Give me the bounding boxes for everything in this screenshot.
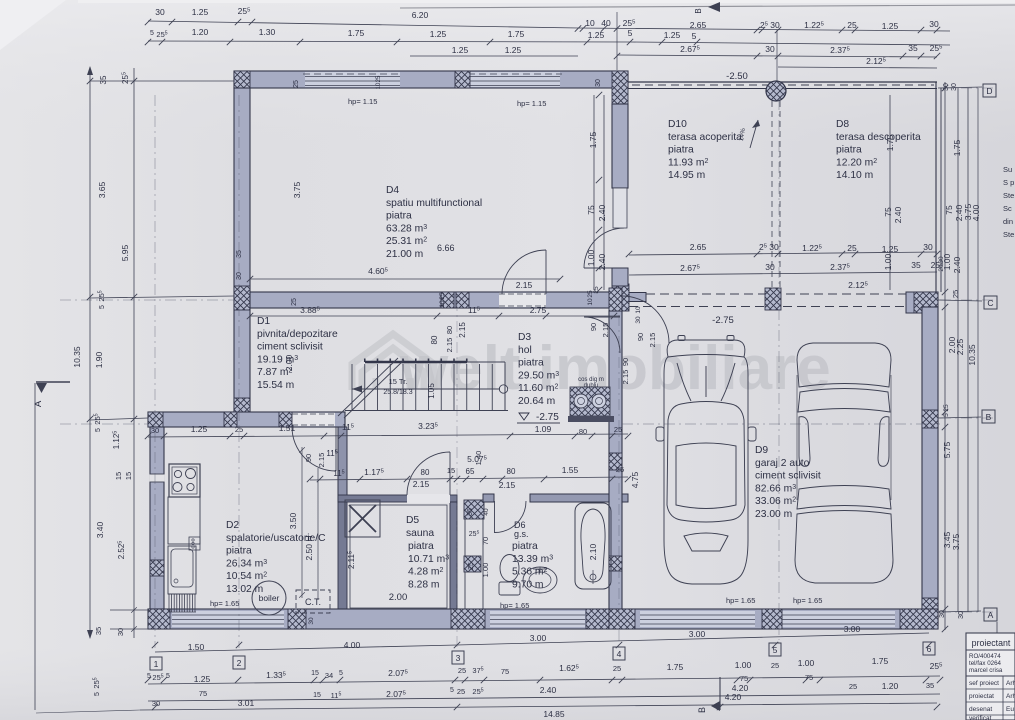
svg-text:1.75: 1.75: [885, 134, 895, 151]
svg-text:25: 25: [847, 20, 857, 30]
svg-text:D2: D2: [226, 520, 239, 531]
svg-text:30: 30: [308, 617, 315, 625]
svg-text:3.75: 3.75: [951, 533, 961, 550]
svg-text:hp= 1.65: hp= 1.65: [500, 601, 529, 610]
svg-text:terasa descoperita: terasa descoperita: [836, 132, 921, 143]
svg-text:3.65: 3.65: [97, 181, 107, 198]
svg-text:1.25: 1.25: [505, 45, 522, 55]
svg-text:D5: D5: [406, 515, 419, 526]
svg-text:terasa acoperita: terasa acoperita: [668, 132, 742, 143]
svg-text:hp= 1.65: hp= 1.65: [793, 596, 822, 605]
svg-text:5.95: 5.95: [120, 244, 130, 261]
svg-text:5: 5: [773, 645, 778, 655]
svg-text:15 Tr.: 15 Tr.: [389, 377, 408, 386]
svg-text:2.15: 2.15: [648, 333, 657, 348]
svg-text:25: 25: [439, 292, 446, 300]
svg-text:5: 5: [95, 428, 102, 432]
svg-text:80: 80: [430, 335, 439, 344]
svg-text:4.75: 4.75: [630, 471, 640, 488]
svg-text:-2.50: -2.50: [726, 71, 748, 82]
svg-text:34: 34: [325, 671, 333, 680]
svg-text:1.20: 1.20: [192, 27, 209, 37]
svg-text:25.8/18.3: 25.8/18.3: [383, 389, 412, 396]
svg-text:4: 4: [617, 649, 622, 659]
svg-text:5.75: 5.75: [942, 441, 952, 458]
svg-text:spatiu multifunctional: spatiu multifunctional: [386, 198, 482, 209]
svg-text:-2.75: -2.75: [536, 412, 559, 423]
svg-text:Arh: Arh: [1006, 680, 1015, 687]
svg-text:6.20: 6.20: [412, 10, 429, 20]
svg-text:30: 30: [595, 79, 602, 87]
svg-text:75: 75: [944, 205, 954, 215]
svg-text:1.25: 1.25: [664, 30, 681, 40]
svg-text:1.75: 1.75: [952, 139, 962, 156]
svg-text:30: 30: [765, 262, 775, 272]
svg-text:3.40: 3.40: [95, 521, 105, 538]
svg-text:1.25: 1.25: [882, 244, 899, 254]
svg-text:C.T.: C.T.: [305, 597, 321, 607]
svg-text:1.05: 1.05: [427, 383, 436, 399]
svg-text:D8: D8: [836, 119, 849, 130]
svg-text:80: 80: [579, 427, 587, 436]
svg-text:2.75: 2.75: [530, 305, 547, 315]
svg-text:1.00: 1.00: [735, 660, 752, 670]
svg-text:2.40: 2.40: [952, 256, 962, 273]
svg-text:1: 1: [154, 659, 159, 669]
svg-text:piatra: piatra: [226, 546, 252, 557]
svg-text:75: 75: [883, 207, 893, 217]
svg-text:25: 25: [614, 425, 622, 434]
svg-text:15: 15: [114, 472, 123, 480]
svg-text:10: 10: [635, 306, 642, 314]
svg-text:25: 25: [468, 562, 475, 570]
svg-text:2.15: 2.15: [317, 453, 326, 468]
svg-text:5: 5: [166, 673, 170, 680]
svg-text:3: 3: [456, 653, 461, 663]
svg-text:piatra: piatra: [668, 145, 694, 156]
svg-text:25.31 m2: 25.31 m2: [386, 236, 427, 247]
svg-text:D: D: [986, 86, 992, 96]
svg-text:5: 5: [150, 30, 154, 37]
svg-text:S p: S p: [1003, 178, 1014, 187]
svg-text:1.75: 1.75: [348, 28, 365, 38]
svg-text:20.64 m: 20.64 m: [518, 396, 555, 407]
svg-text:g.s.: g.s.: [514, 529, 529, 539]
svg-text:30: 30: [769, 242, 779, 252]
svg-text:hp= 1.15: hp= 1.15: [517, 99, 546, 108]
svg-text:23.00 m: 23.00 m: [755, 509, 792, 520]
svg-text:3.50: 3.50: [288, 512, 298, 529]
svg-text:3.00: 3.00: [689, 629, 706, 639]
svg-text:1.09: 1.09: [535, 424, 552, 434]
svg-text:A: A: [988, 610, 994, 620]
svg-text:proiectant: proiectant: [972, 638, 1011, 648]
svg-text:proiectat: proiectat: [969, 693, 994, 700]
svg-text:hp= 1.15: hp= 1.15: [348, 97, 377, 106]
svg-text:75: 75: [199, 689, 207, 698]
svg-text:3.01: 3.01: [238, 698, 255, 708]
svg-text:dublu: dublu: [584, 383, 599, 389]
svg-text:10.71 m3: 10.71 m3: [408, 554, 449, 565]
svg-text:35: 35: [926, 681, 934, 690]
svg-text:30: 30: [770, 20, 780, 30]
svg-text:29.50 m3: 29.50 m3: [518, 370, 559, 381]
svg-text:D1: D1: [257, 316, 270, 327]
svg-text:3.75: 3.75: [292, 181, 302, 198]
svg-text:B: B: [694, 8, 703, 13]
svg-text:1.40: 1.40: [474, 451, 483, 466]
svg-text:25: 25: [771, 661, 779, 670]
svg-text:25: 25: [235, 425, 243, 434]
svg-text:1.00: 1.00: [883, 253, 893, 270]
svg-text:garaj 2 auto: garaj 2 auto: [755, 458, 810, 469]
svg-text:26.34 m3: 26.34 m3: [226, 558, 267, 569]
svg-text:25: 25: [849, 682, 857, 691]
svg-text:1.00: 1.00: [481, 563, 490, 578]
svg-text:5: 5: [99, 305, 106, 309]
svg-text:90: 90: [636, 333, 645, 341]
svg-text:5: 5: [692, 31, 697, 41]
svg-text:75: 75: [586, 205, 596, 215]
svg-text:25: 25: [457, 687, 465, 696]
svg-text:RO/400474: RO/400474: [969, 653, 1001, 660]
svg-text:2.40: 2.40: [597, 204, 607, 221]
svg-text:Ste: Ste: [1003, 230, 1014, 239]
svg-text:90: 90: [304, 454, 313, 462]
svg-text:14.85: 14.85: [543, 709, 565, 719]
svg-text:D3: D3: [518, 332, 531, 343]
svg-text:80: 80: [421, 468, 430, 477]
svg-text:tel/fax 0264: tel/fax 0264: [969, 660, 1002, 667]
svg-text:6.66: 6.66: [437, 243, 455, 253]
svg-text:30: 30: [635, 316, 642, 324]
svg-text:B: B: [697, 707, 707, 713]
svg-text:9.70 m: 9.70 m: [512, 579, 543, 590]
svg-text:-2.75: -2.75: [712, 315, 734, 326]
svg-text:2.40: 2.40: [540, 685, 557, 695]
svg-text:30: 30: [929, 19, 939, 29]
svg-text:verificat: verificat: [969, 715, 992, 720]
svg-text:75: 75: [501, 667, 509, 676]
svg-text:1.50: 1.50: [188, 642, 205, 652]
svg-text:2.15: 2.15: [445, 338, 454, 353]
svg-text:35: 35: [99, 75, 108, 84]
svg-text:15: 15: [447, 466, 455, 475]
svg-text:13.02 m: 13.02 m: [226, 584, 263, 595]
svg-text:din: din: [1003, 217, 1013, 226]
svg-text:10: 10: [439, 300, 446, 308]
svg-text:13.39 m3: 13.39 m3: [512, 554, 553, 565]
svg-text:piatra: piatra: [518, 358, 544, 369]
svg-text:hp= 1.65: hp= 1.65: [210, 599, 239, 608]
svg-text:15: 15: [313, 692, 321, 699]
svg-text:30: 30: [151, 426, 159, 435]
svg-text:1.25: 1.25: [191, 424, 208, 434]
svg-text:1.30: 1.30: [259, 27, 276, 37]
svg-text:5: 5: [339, 670, 343, 677]
svg-text:5: 5: [94, 692, 101, 696]
svg-text:1.25: 1.25: [192, 7, 209, 17]
svg-text:8.28 m: 8.28 m: [408, 579, 439, 590]
svg-text:2.00: 2.00: [284, 354, 294, 371]
svg-text:2.65: 2.65: [690, 20, 707, 30]
svg-text:75: 75: [805, 673, 813, 682]
svg-text:D10: D10: [668, 119, 687, 130]
svg-text:30: 30: [152, 699, 160, 708]
svg-text:30: 30: [765, 44, 775, 54]
svg-text:sef proiect: sef proiect: [969, 680, 999, 687]
svg-text:1.51: 1.51: [279, 423, 296, 433]
svg-text:40: 40: [483, 508, 490, 516]
svg-text:piatra: piatra: [836, 145, 862, 156]
svg-text:sauna: sauna: [406, 528, 434, 539]
svg-text:4.28 m2: 4.28 m2: [408, 567, 443, 578]
svg-text:2.10: 2.10: [588, 543, 598, 560]
svg-text:25: 25: [951, 290, 960, 298]
svg-text:D4: D4: [386, 185, 399, 196]
svg-text:D9: D9: [755, 445, 768, 456]
svg-text:5: 5: [147, 673, 151, 680]
svg-text:1.75: 1.75: [508, 29, 525, 39]
svg-text:Eu: Eu: [1006, 706, 1014, 713]
svg-text:1.25: 1.25: [882, 21, 899, 31]
svg-text:2.40: 2.40: [893, 206, 903, 223]
svg-text:3.00: 3.00: [844, 624, 861, 634]
svg-text:2.40: 2.40: [597, 253, 607, 270]
svg-text:35: 35: [236, 250, 243, 258]
svg-text:80: 80: [507, 467, 516, 476]
svg-text:6: 6: [927, 644, 932, 654]
svg-text:5.36 m2: 5.36 m2: [512, 567, 547, 578]
svg-text:B: B: [986, 412, 992, 422]
svg-text:1.25: 1.25: [452, 45, 469, 55]
svg-text:2.50 H: 2.50 H: [304, 535, 314, 560]
svg-text:piatra: piatra: [408, 541, 434, 552]
svg-text:1.25: 1.25: [588, 30, 605, 40]
svg-text:2.25: 2.25: [955, 338, 965, 355]
svg-text:1.00: 1.00: [586, 249, 596, 266]
svg-text:25: 25: [291, 298, 298, 306]
svg-text:2.15: 2.15: [601, 323, 610, 338]
svg-text:10: 10: [587, 298, 594, 306]
svg-text:40: 40: [601, 18, 611, 28]
svg-text:1.55: 1.55: [562, 465, 579, 475]
svg-text:Ste: Ste: [1003, 191, 1014, 200]
svg-text:14.10 m: 14.10 m: [836, 170, 873, 181]
svg-text:30: 30: [155, 7, 165, 17]
svg-text:5: 5: [628, 28, 633, 38]
svg-text:35: 35: [911, 260, 921, 270]
svg-text:C: C: [987, 298, 993, 308]
svg-text:12.20 m2: 12.20 m2: [836, 157, 877, 168]
svg-text:25: 25: [613, 664, 621, 673]
svg-text:hol: hol: [518, 345, 532, 356]
svg-text:14.95 m: 14.95 m: [668, 170, 705, 181]
svg-text:15: 15: [311, 670, 319, 677]
svg-text:2.65: 2.65: [690, 242, 707, 252]
svg-text:piatra: piatra: [512, 541, 538, 552]
svg-text:piatra: piatra: [386, 211, 412, 222]
svg-text:1.25: 1.25: [194, 674, 211, 684]
svg-text:1.75: 1.75: [872, 656, 889, 666]
svg-text:desenat: desenat: [969, 706, 992, 713]
svg-text:2.15: 2.15: [621, 370, 630, 385]
svg-text:1.25: 1.25: [430, 29, 447, 39]
svg-text:pivnita/depozitare: pivnita/depozitare: [257, 329, 338, 340]
svg-text:25: 25: [616, 465, 624, 474]
svg-text:80: 80: [445, 326, 454, 334]
svg-text:1.90: 1.90: [94, 351, 104, 368]
svg-text:1.75: 1.75: [588, 131, 598, 148]
svg-text:2.15: 2.15: [413, 479, 430, 489]
svg-text:2: 2: [237, 658, 242, 668]
svg-text:5: 5: [450, 687, 454, 694]
svg-text:Arh: Arh: [1006, 693, 1015, 700]
svg-text:ciment sclivisit: ciment sclivisit: [257, 342, 323, 353]
svg-text:30: 30: [951, 83, 958, 91]
svg-text:35: 35: [908, 43, 918, 53]
svg-text:1.75: 1.75: [667, 662, 684, 672]
svg-text:15: 15: [124, 472, 133, 480]
svg-text:2.15: 2.15: [458, 322, 467, 338]
svg-text:11.60 m2: 11.60 m2: [518, 383, 558, 394]
svg-text:2.00: 2.00: [389, 592, 408, 603]
svg-text:10.35: 10.35: [967, 344, 977, 366]
svg-text:ciment sclivisit: ciment sclivisit: [755, 471, 821, 482]
svg-text:65: 65: [466, 467, 475, 476]
svg-text:3.00: 3.00: [530, 633, 547, 643]
svg-text:30: 30: [958, 611, 965, 619]
svg-text:25: 25: [458, 666, 466, 675]
svg-text:2.15: 2.15: [516, 280, 533, 290]
svg-text:11.93 m2: 11.93 m2: [668, 157, 708, 168]
svg-text:1.00: 1.00: [798, 658, 815, 668]
svg-text:25: 25: [376, 75, 382, 82]
svg-text:15.54 m: 15.54 m: [257, 380, 294, 391]
svg-text:2.15: 2.15: [499, 480, 516, 490]
svg-text:25: 25: [293, 80, 300, 88]
svg-text:1.20: 1.20: [882, 681, 899, 691]
svg-text:35: 35: [94, 627, 103, 635]
svg-text:70: 70: [481, 537, 490, 545]
svg-text:35: 35: [467, 508, 474, 516]
svg-text:33.06 m2: 33.06 m2: [755, 496, 796, 507]
svg-text:75: 75: [740, 674, 748, 683]
svg-text:30: 30: [236, 272, 243, 280]
svg-text:Su: Su: [1003, 165, 1012, 174]
svg-text:10.35: 10.35: [72, 346, 82, 368]
svg-text:marcel crisa: marcel crisa: [969, 667, 1003, 674]
svg-text:hp= 1.65: hp= 1.65: [726, 596, 755, 605]
svg-text:4.00: 4.00: [971, 204, 981, 221]
svg-text:21.00 m: 21.00 m: [386, 249, 423, 260]
svg-text:10.54 m2: 10.54 m2: [226, 571, 267, 582]
svg-text:63.28 m3: 63.28 m3: [386, 223, 427, 234]
svg-text:25: 25: [847, 243, 857, 253]
svg-text:30: 30: [923, 242, 933, 252]
svg-text:4.00: 4.00: [344, 640, 361, 650]
svg-text:82.66 m3: 82.66 m3: [755, 483, 796, 494]
svg-text:4.20: 4.20: [725, 692, 742, 702]
svg-text:90: 90: [589, 323, 598, 331]
svg-text:Sc: Sc: [1003, 204, 1012, 213]
svg-text:10: 10: [585, 18, 595, 28]
svg-text:90: 90: [621, 358, 630, 366]
